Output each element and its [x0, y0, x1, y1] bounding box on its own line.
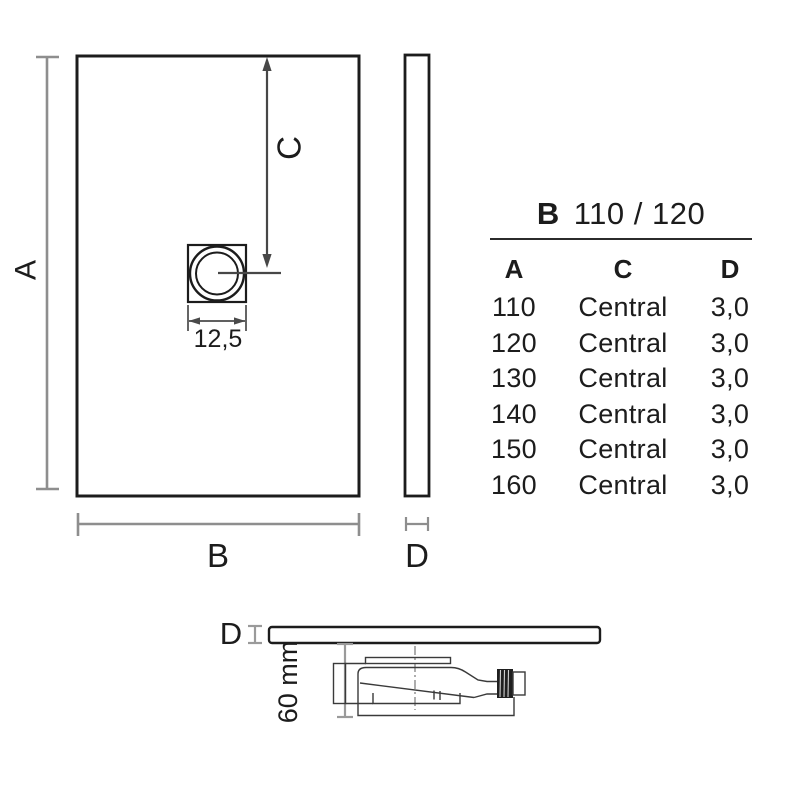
trap-flange: [366, 658, 451, 664]
plan-view: C 12,5: [77, 56, 359, 496]
table-cell: Central: [550, 468, 696, 504]
trap-body-neck: [474, 694, 497, 698]
table-cell: 110: [478, 290, 550, 326]
table-cell: 3,0: [696, 361, 764, 397]
table-cell: 130: [478, 361, 550, 397]
table-grid: A C D 110 Central 3,0 120 Central 3,0 13…: [478, 240, 764, 503]
drain-trap-drawing: [334, 646, 526, 716]
table-title-model: B: [537, 196, 560, 231]
label-a: A: [10, 260, 43, 280]
spec-table: B110 / 120 A C D 110 Central 3,0 120 Cen…: [478, 198, 764, 503]
label-c: C: [271, 136, 308, 160]
side-view-outline: [405, 55, 429, 496]
table-cell: Central: [550, 432, 696, 468]
table-cell: Central: [550, 397, 696, 433]
side-view: [405, 55, 429, 496]
table-cell: Central: [550, 361, 696, 397]
table-cell: 140: [478, 397, 550, 433]
column-header-c: C: [550, 248, 696, 290]
label-drain-width: 12,5: [194, 325, 243, 353]
section-view: D 60 mm: [220, 616, 600, 723]
column-header-d: D: [696, 248, 764, 290]
section-dim-d: [248, 626, 262, 643]
column-header-a: A: [478, 248, 550, 290]
shower-tray-technical-drawing: C 12,5 A B: [0, 0, 800, 800]
dim-b: [78, 513, 359, 536]
table-title: B110 / 120: [478, 198, 764, 229]
dim-d: [406, 517, 428, 531]
label-b: B: [207, 537, 229, 574]
table-cell: Central: [550, 326, 696, 362]
table-cell: 150: [478, 432, 550, 468]
table-title-sizes: 110 / 120: [574, 196, 705, 231]
table-cell: 3,0: [696, 290, 764, 326]
section-label-d: D: [220, 616, 242, 651]
table-cell: 160: [478, 468, 550, 504]
table-cell: 120: [478, 326, 550, 362]
table-cell: 3,0: [696, 397, 764, 433]
table-cell: 3,0: [696, 468, 764, 504]
depth-label: 60 mm: [273, 641, 303, 724]
table-cell: 3,0: [696, 326, 764, 362]
label-d: D: [405, 537, 429, 574]
trap-end-cap: [513, 672, 525, 695]
trap-left-bracket: [334, 664, 346, 704]
trap-slope: [360, 683, 474, 698]
plan-view-outline: [77, 56, 359, 496]
table-cell: 3,0: [696, 432, 764, 468]
tray-profile: [269, 627, 600, 643]
table-cell: Central: [550, 290, 696, 326]
trap-thread-hatch: [497, 669, 513, 698]
